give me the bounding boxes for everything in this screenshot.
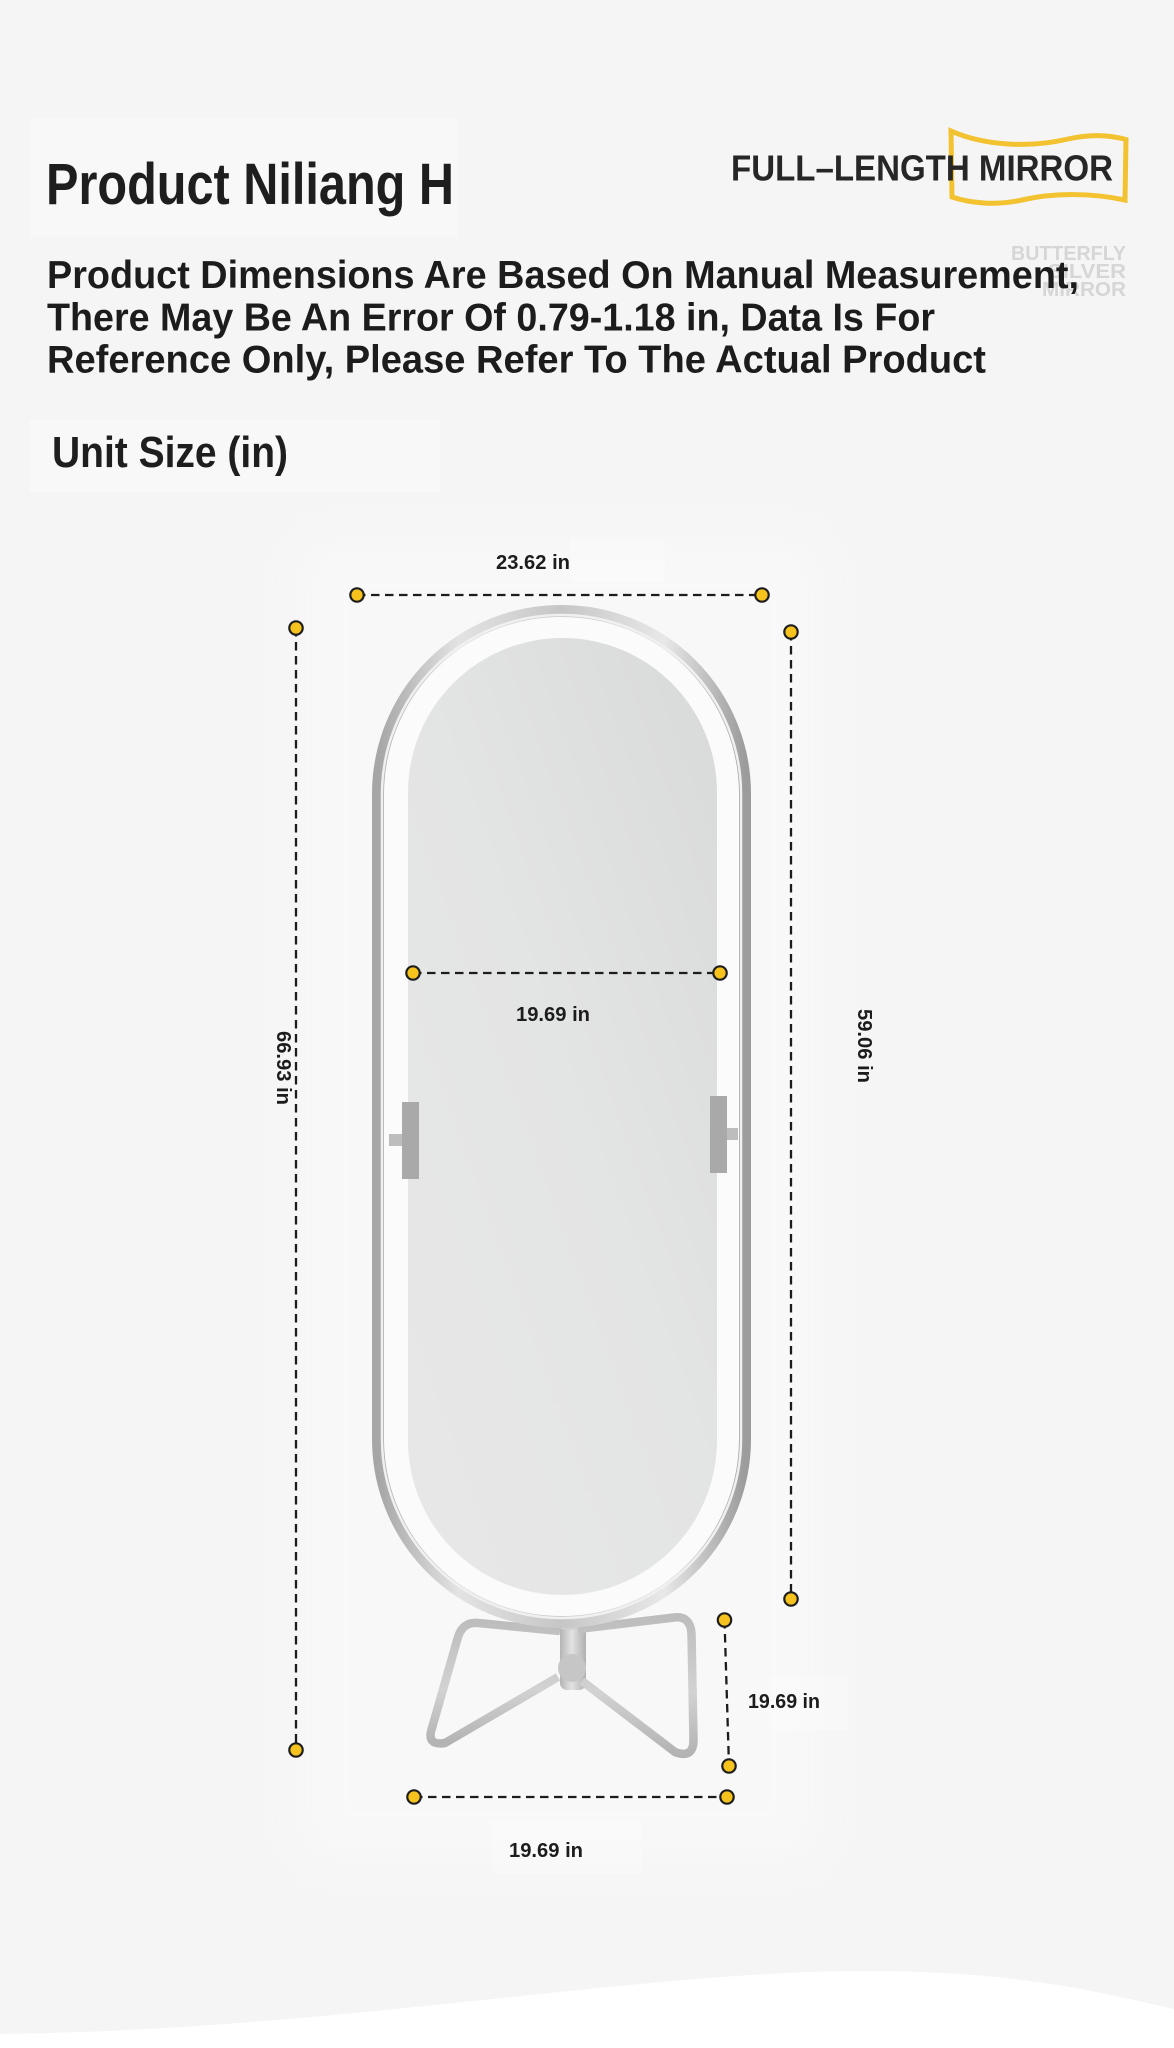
svg-text:There May Be An Error Of 0.79-: There May Be An Error Of 0.79-1.18 in, D…: [47, 297, 935, 340]
svg-text:Reference Only, Please Refer T: Reference Only, Please Refer To The Actu…: [47, 339, 986, 382]
svg-text:Product Dimensions Are Based O: Product Dimensions Are Based On Manual M…: [47, 254, 1079, 297]
svg-text:23.62 in: 23.62 in: [496, 552, 570, 574]
svg-text:Product Niliang H: Product Niliang H: [46, 152, 454, 217]
svg-text:Unit Size (in): Unit Size (in): [52, 428, 288, 477]
svg-text:66.93 in: 66.93 in: [272, 1031, 294, 1105]
svg-text:19.69 in: 19.69 in: [748, 1691, 820, 1713]
svg-text:FULL–LENGTH MIRROR: FULL–LENGTH MIRROR: [731, 148, 1113, 189]
svg-text:19.69 in: 19.69 in: [509, 1840, 583, 1862]
svg-text:19.69 in: 19.69 in: [516, 1004, 590, 1026]
svg-text:59.06 in: 59.06 in: [853, 1009, 875, 1083]
